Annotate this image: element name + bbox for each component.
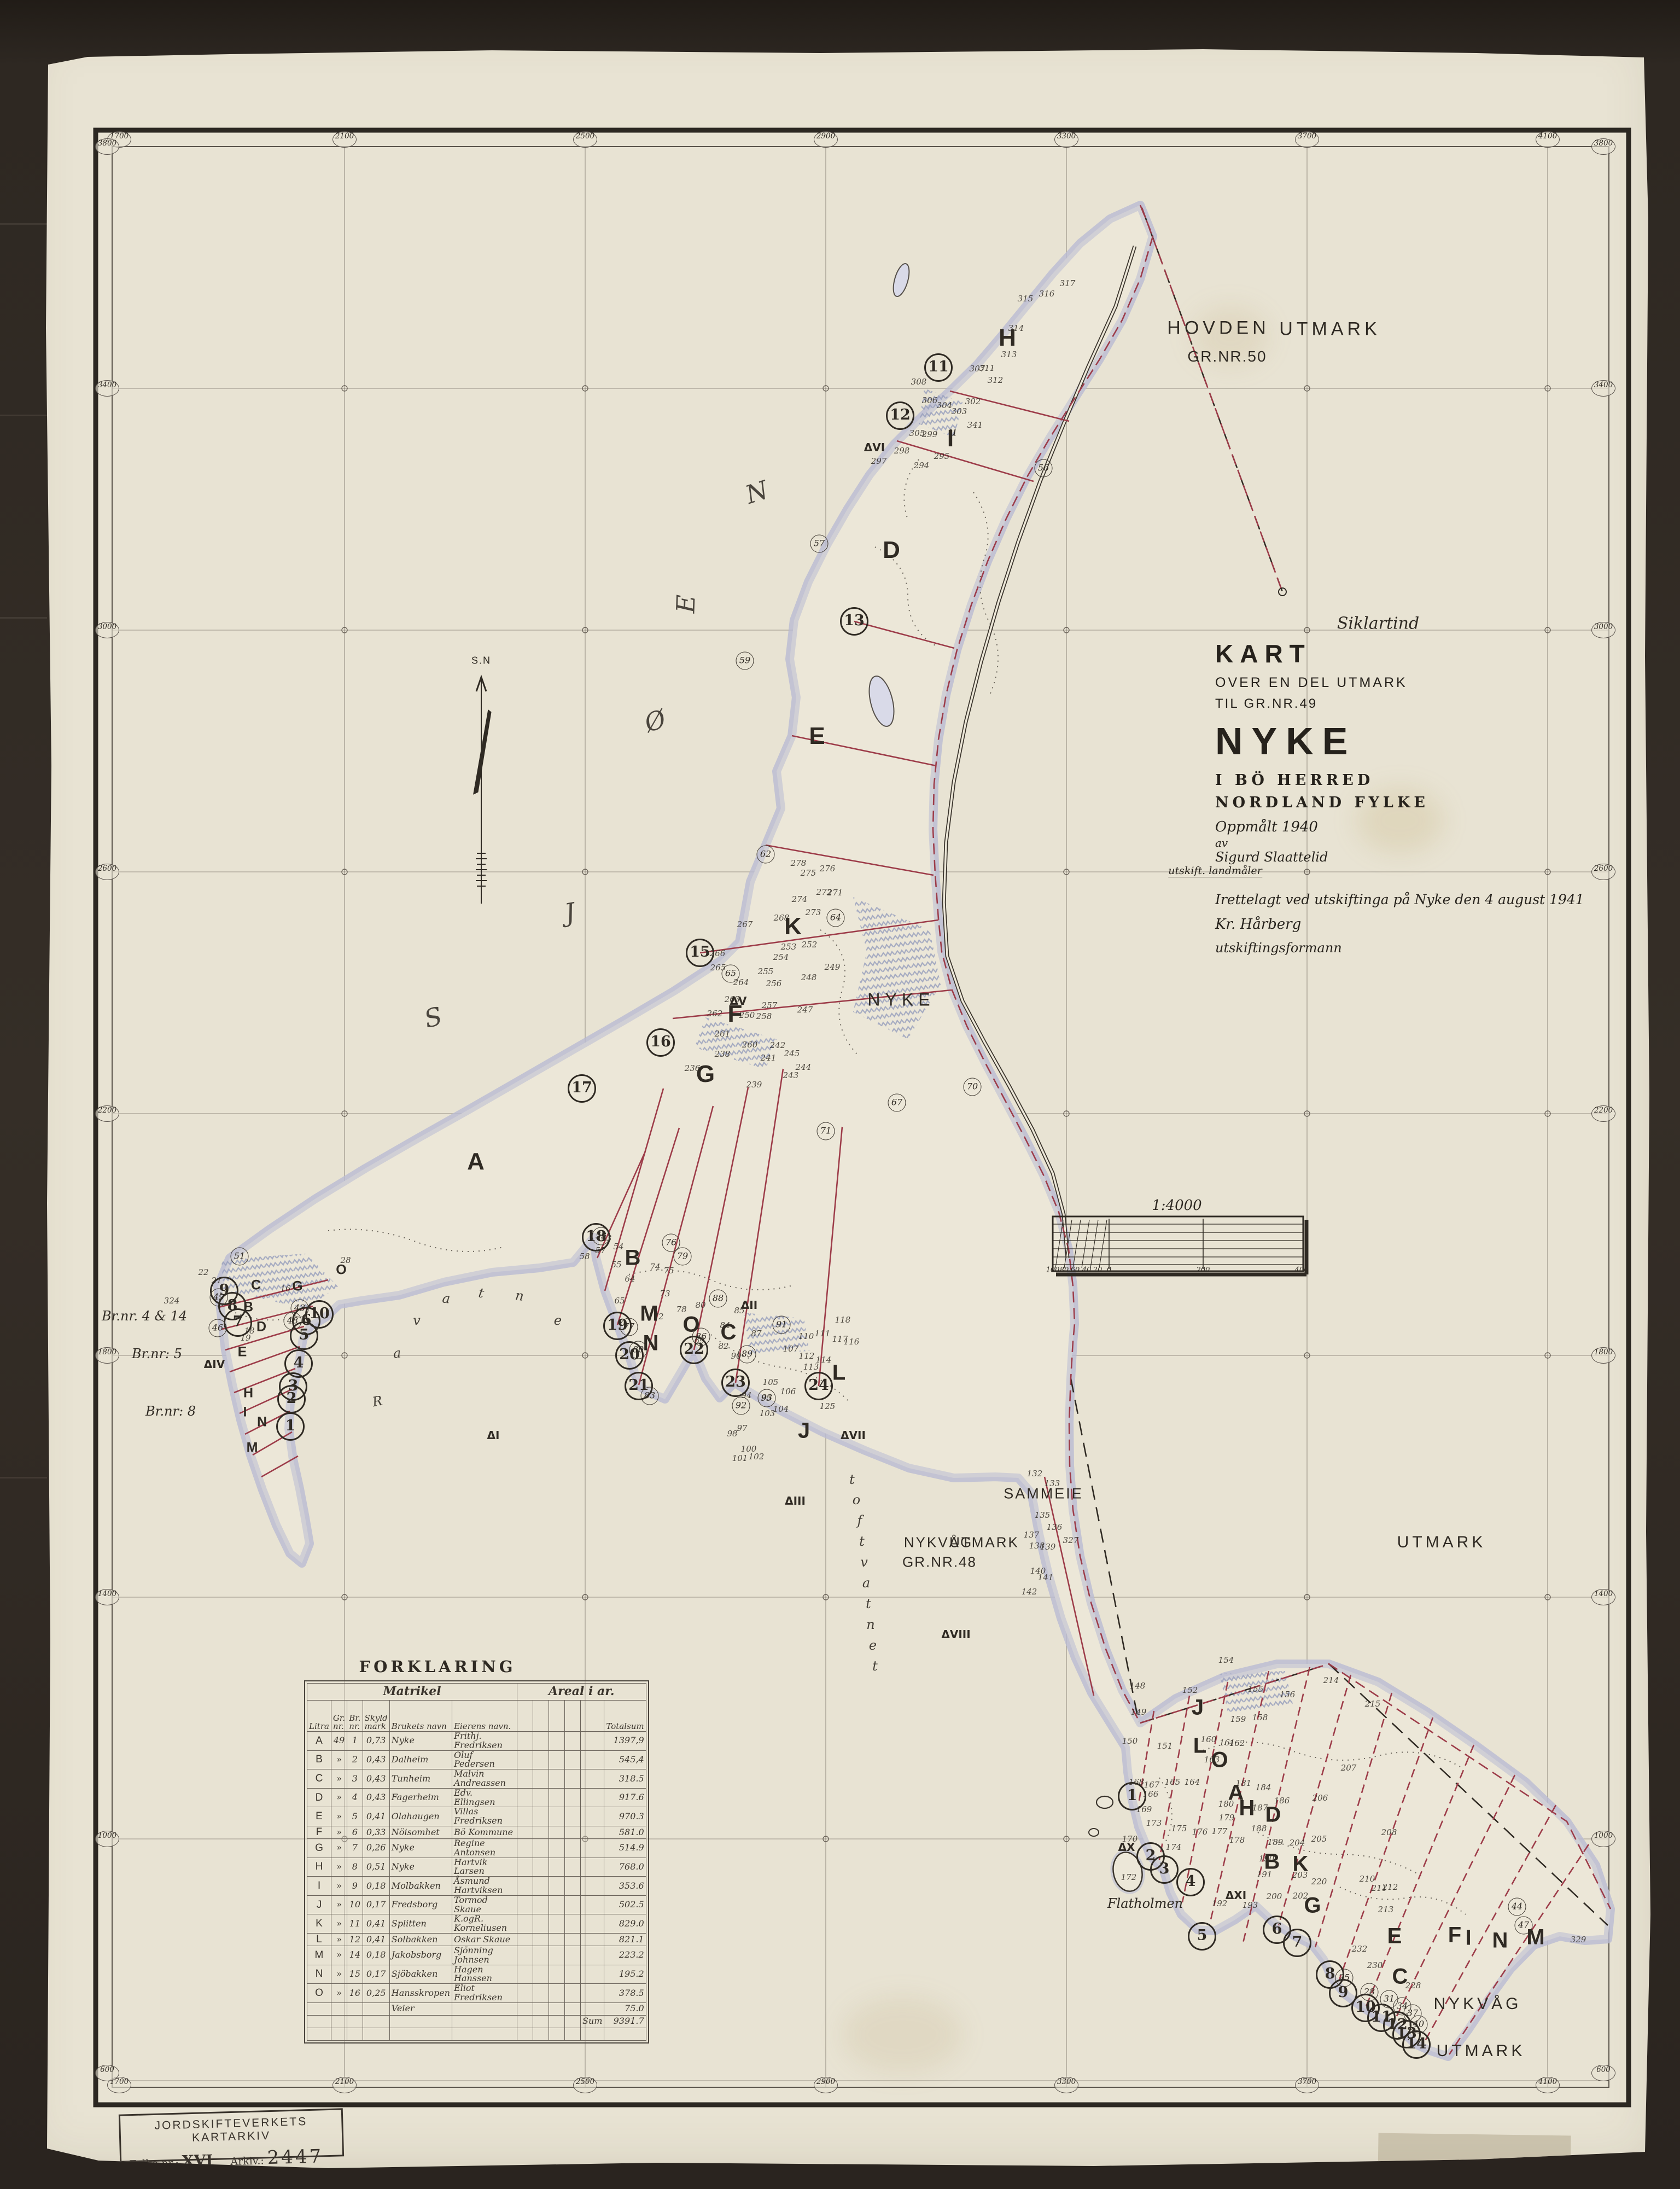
grid-coordinate-label: 3000 (1591, 622, 1615, 638)
archive-stamp-refs: Fylke nr.: XVI Arkiv.: 2447 (121, 2145, 343, 2173)
photo-crease (0, 1477, 47, 1478)
scale-tick-label: 60 (1071, 1266, 1080, 1274)
legend-row-cell (533, 1877, 549, 1896)
channel-name-letter: a (862, 1575, 870, 1591)
legend-row-cell (517, 1807, 533, 1826)
parcel-number: 257 (762, 1000, 778, 1010)
legend-row-cell: 0,51 (363, 1858, 389, 1877)
parcel-number: 245 (784, 1049, 800, 1058)
triangulation-mark: ΔVIII (941, 1628, 970, 1641)
legend-row-cell: 0,18 (363, 1877, 389, 1896)
parcel-number: 265 (710, 963, 726, 973)
legend-row-cell: C (307, 1769, 331, 1789)
grid-coordinate-label: 3400 (1591, 380, 1615, 397)
parcel-number: 172 (1121, 1872, 1137, 1882)
legend-row-cell: Frithj. Fredriksen (452, 1732, 517, 1751)
triangulation-mark: ΔIII (785, 1494, 806, 1507)
region-label: SAMMEIE (1004, 1486, 1083, 1503)
legend-row-cell: 11 (347, 1914, 363, 1934)
legend-row-cell (549, 1895, 564, 1914)
parcel-number: 133 (1045, 1478, 1060, 1488)
parcel-number: 58 (579, 1251, 590, 1261)
parcel-number: 306 (922, 395, 938, 405)
station-number: 64 (827, 909, 845, 927)
legend-sum-cell (363, 2015, 389, 2028)
grid-coordinate-label: 2200 (1591, 1105, 1615, 1122)
scale-tick-label: 0 (1107, 1266, 1111, 1274)
bay-name-letter: a (392, 1345, 401, 1361)
station-number: 80 (629, 1341, 647, 1359)
legend-row-cell: 0,41 (363, 1933, 389, 1946)
legend-row-cell (564, 1946, 580, 1965)
legend-veier-cell (533, 2002, 549, 2015)
scale-tick-label: 40 (1082, 1266, 1092, 1274)
legend-veier-cell: Veier (389, 2002, 452, 2015)
legend-row-cell (533, 1750, 549, 1769)
parcel-number: 169 (1136, 1804, 1152, 1814)
station-number: 59 (736, 652, 754, 670)
coast-point-number: 24 (804, 1372, 833, 1400)
legend-row-cell: Tunheim (389, 1769, 452, 1789)
parcel-number: 276 (820, 864, 836, 874)
legend-row-cell (549, 1877, 564, 1896)
parcel-number: 236 (685, 1063, 701, 1073)
legend-sum-cell (549, 2015, 564, 2028)
legend-row-cell: » (331, 1838, 347, 1858)
legend-row-cell (517, 1984, 533, 2003)
grid-coordinate-label: 3800 (95, 138, 119, 155)
legend-row-cell (533, 1965, 549, 1984)
region-label: GR.NR.50 (1187, 348, 1267, 365)
legend-veier-cell (363, 2002, 389, 2015)
legend-row-cell: 12 (347, 1933, 363, 1946)
legend-row-cell (517, 1750, 533, 1769)
legend-row-cell: 0,17 (363, 1965, 389, 1984)
grid-coordinate-label: 2200 (95, 1105, 119, 1122)
parcel-number: 191 (1257, 1870, 1273, 1879)
legend-row-cell: 9 (347, 1877, 363, 1896)
coast-point-number: 13 (840, 607, 868, 636)
parcel-number: 268 (774, 913, 790, 923)
legend-row-cell: 0,33 (363, 1826, 389, 1838)
station-number: 44 (1508, 1898, 1526, 1916)
legend-row-cell (549, 1933, 564, 1946)
legend-row-cell (580, 1933, 604, 1946)
legend-row-cell: 917.6 (604, 1788, 646, 1807)
coast-point-number: 5 (1188, 1922, 1216, 1951)
legend-row-cell: 49 (331, 1732, 347, 1751)
parcel-number: 317 (1060, 278, 1076, 288)
parcel-number: 160 (1201, 1734, 1217, 1744)
legend-row-cell: » (331, 1933, 347, 1946)
fylke-label: Fylke nr.: (129, 2157, 179, 2171)
parcel-number: 214 (1323, 1675, 1339, 1685)
legend-row-cell (517, 1788, 533, 1807)
legend-row-cell: 3 (347, 1769, 363, 1789)
parcel-number: 298 (894, 446, 910, 456)
parcel-number: 302 (965, 397, 981, 406)
parcel-number: 166 (1143, 1789, 1159, 1799)
parcel-number: 238 (715, 1049, 731, 1059)
parcel-number: 174 (1166, 1842, 1182, 1852)
map-label-layer: HOVDENGR.NR.50UTMARKNYKESAMMEIENYKVÅGUTM… (0, 0, 1680, 2189)
legend-sum-cell (389, 2015, 452, 2028)
parcel-number: 22 (198, 1267, 208, 1277)
legend-row-cell: Eliot Fredriksen (452, 1984, 517, 2003)
grid-coordinate-label: 4100 (1536, 131, 1560, 148)
grid-coordinate-label: 2900 (814, 131, 838, 148)
parcel-number: 94 (741, 1390, 751, 1400)
station-number: 91 (773, 1316, 791, 1334)
scale-tick-label: 80 (1060, 1266, 1069, 1274)
parcel-number: 205 (1311, 1834, 1327, 1844)
legend-empty-cell (533, 2028, 549, 2040)
parcel-number: 135 (1035, 1510, 1051, 1520)
legend-row-cell: Regine Antonsen (452, 1838, 517, 1858)
parcel-number: 112 (799, 1351, 815, 1361)
legend-row-cell: 7 (347, 1838, 363, 1858)
parcel-number: 84 (720, 1320, 730, 1330)
parcel-number: 190 (1259, 1854, 1275, 1864)
bay-name-letter: n (514, 1288, 524, 1304)
parcel-letter: I (1465, 1926, 1471, 1951)
parcel-number: 180 (1218, 1799, 1234, 1809)
parcel-number: 329 (1571, 1935, 1586, 1945)
legend-row-cell (564, 1732, 580, 1751)
grid-coordinate-label: 3700 (1295, 2077, 1319, 2093)
legend-sum-cell (533, 2015, 549, 2028)
legend-row-cell: 0,25 (363, 1984, 389, 2003)
legend-veier-cell (452, 2002, 517, 2015)
region-label: UTMARK (949, 1534, 1019, 1551)
scale-title: 1:4000 (1152, 1197, 1201, 1214)
parcel-number: 294 (914, 461, 930, 470)
legend-row-cell (533, 1838, 549, 1858)
parcel-number: 102 (749, 1452, 765, 1462)
legend-row-cell (564, 1914, 580, 1934)
legend-row-cell: Molbakken (389, 1877, 452, 1896)
parcel-number: 28 (340, 1255, 351, 1265)
legend-row-cell: 5 (347, 1807, 363, 1826)
legend-veier-cell (347, 2002, 363, 2015)
station-number: 83 (641, 1387, 659, 1405)
legend-column-header: Br. nr. (347, 1701, 363, 1732)
parcel-number: 117 (832, 1334, 848, 1344)
parcel-number: 207 (1341, 1763, 1357, 1773)
parcel-letter: J (1192, 1696, 1204, 1720)
legend-row-cell (517, 1858, 533, 1877)
parcel-number: 167 (1144, 1780, 1160, 1790)
station-number: 56 (1035, 459, 1053, 478)
parcel-number: 262 (707, 1009, 723, 1018)
grid-coordinate-label: 1400 (1591, 1589, 1615, 1605)
channel-name-letter: t (872, 1658, 878, 1674)
legend-column-header (580, 1701, 604, 1732)
legend-row-cell: Oskar Skaue (452, 1933, 517, 1946)
place-name-script: Siklartind (1337, 614, 1419, 633)
legend-veier-cell (564, 2002, 580, 2015)
parcel-number: 256 (766, 979, 782, 988)
parcel-number: 90 (731, 1351, 741, 1361)
parcel-letter: E (1387, 1924, 1402, 1949)
legend-row-cell: » (331, 1914, 347, 1934)
station-number: 71 (817, 1122, 835, 1140)
legend-empty-cell (452, 2028, 517, 2040)
parcel-letter: N (1492, 1929, 1508, 1953)
bay-name-letter: v (413, 1313, 421, 1328)
parcel-number: 341 (967, 420, 983, 430)
triangulation-mark: ΔII (741, 1299, 757, 1312)
grid-coordinate-label: 3300 (1054, 2077, 1078, 2093)
parcel-number: 137 (1024, 1530, 1040, 1540)
legend-row-cell (580, 1965, 604, 1984)
legend-row-cell: 970.3 (604, 1807, 646, 1826)
scanned-map-sheet: HOVDENGR.NR.50UTMARKNYKESAMMEIENYKVÅGUTM… (0, 0, 1680, 2189)
parcel-letter: D (256, 1319, 266, 1335)
legend-row-cell: Villas Fredriksen (452, 1807, 517, 1826)
legend-row-cell (533, 1807, 549, 1826)
map-paper: HOVDENGR.NR.50UTMARKNYKESAMMEIENYKVÅGUTM… (0, 0, 1680, 2189)
legend-row-cell: D (307, 1788, 331, 1807)
place-name-script: Br.nr: 5 (132, 1346, 182, 1361)
parcel-number: 258 (756, 1011, 772, 1021)
grid-coordinate-label: 1800 (95, 1347, 119, 1364)
legend-row-cell: Nyke (389, 1858, 452, 1877)
legend-row-cell: 0,41 (363, 1914, 389, 1934)
legend-row-cell: O (307, 1984, 331, 2003)
legend-row-cell: 0,43 (363, 1769, 389, 1789)
legend-row-cell (533, 1788, 549, 1807)
surveyor-title: utskift. landmåler (1168, 865, 1262, 877)
legend-row-cell: » (331, 1769, 347, 1789)
legend-row-cell: Edv. Ellingsen (452, 1788, 517, 1807)
photo-crease (0, 617, 47, 619)
grid-coordinate-label: 2600 (1591, 864, 1615, 880)
parcel-number: 274 (792, 894, 808, 904)
station-number: 47 (1515, 1917, 1533, 1935)
parcel-number: 154 (1218, 1655, 1234, 1665)
legend-row-cell (580, 1750, 604, 1769)
tape-patch (1378, 2133, 1571, 2181)
legend-row-cell: » (331, 1946, 347, 1965)
parcel-number: 304 (937, 400, 953, 410)
parcel-number: 184 (1256, 1783, 1271, 1792)
place-name-script: Flatholmen (1107, 1896, 1183, 1911)
coast-point-number: 1 (276, 1412, 305, 1441)
legend-row-cell (517, 1838, 533, 1858)
parcel-number: 178 (1229, 1835, 1245, 1845)
parcel-number: 163 (1204, 1755, 1220, 1765)
legend-row-cell: Hagen Hanssen (452, 1965, 517, 1984)
legend-row-cell (517, 1914, 533, 1934)
parcel-number: 64 (625, 1274, 635, 1284)
station-number: 28 (1361, 1983, 1379, 2001)
legend-empty-cell (363, 2028, 389, 2040)
parcel-letter: E (238, 1344, 247, 1360)
legend-row-cell (580, 1769, 604, 1789)
coast-point-number: 7 (1283, 1929, 1311, 1957)
scale-tick-label: 400 (1295, 1266, 1309, 1274)
legend-row-cell (564, 1984, 580, 2003)
legend-row-cell: J (307, 1895, 331, 1914)
parcel-number: 230 (1367, 1960, 1383, 1970)
parcel-number: 142 (1022, 1587, 1037, 1597)
region-label: UTMARK (1437, 2042, 1526, 2060)
parcel-number: 314 (1008, 323, 1024, 333)
legend-row-cell: Jakobsborg (389, 1946, 452, 1965)
channel-name-letter: t (859, 1534, 865, 1549)
parcel-number: 101 (732, 1453, 748, 1463)
legend-row-cell: 14 (347, 1946, 363, 1965)
scale-tick-label: 20 (1093, 1266, 1102, 1274)
legend-row-cell (580, 1984, 604, 2003)
legend-row-cell: 223.2 (604, 1946, 646, 1965)
parcel-number: 72 (653, 1312, 663, 1321)
legend-row-cell (549, 1965, 564, 1984)
parcel-number: 273 (806, 907, 821, 917)
legend-group-header: Areal i ar. (517, 1684, 646, 1701)
parcel-number: 107 (783, 1344, 799, 1354)
legend-sum-cell (452, 2015, 517, 2028)
parcel-number: 249 (825, 962, 841, 972)
bay-name-letter: R (371, 1393, 384, 1410)
coast-point-number: 17 (568, 1074, 596, 1103)
triangulation-mark: ΔX (1118, 1841, 1135, 1854)
legend-row-cell: » (331, 1807, 347, 1826)
fylke-value: XVI (182, 2151, 213, 2170)
parcel-number: 125 (820, 1401, 836, 1411)
legend-row-cell (517, 1877, 533, 1896)
legend-row-cell (580, 1858, 604, 1877)
legend-empty-cell (604, 2028, 646, 2040)
parcel-number: 253 (781, 942, 797, 952)
compass-label: S.N (471, 655, 491, 667)
legend-row-cell: 0,18 (363, 1946, 389, 1965)
legend-row-cell: 15 (347, 1965, 363, 1984)
parcel-number: 261 (715, 1029, 731, 1039)
legend-row-cell: Olahaugen (389, 1807, 452, 1826)
legend-column-header (517, 1701, 533, 1732)
channel-name-letter: o (853, 1492, 860, 1507)
parcel-number: 208 (1381, 1827, 1397, 1837)
legend-row-cell (564, 1858, 580, 1877)
parcel-number: 244 (796, 1062, 812, 1072)
grid-coordinate-label: 1400 (95, 1589, 119, 1605)
coast-point-number: 11 (924, 353, 953, 382)
region-label: NYKVÅG (1433, 1995, 1521, 2013)
parcel-number: 264 (733, 977, 749, 987)
legend-row-cell (517, 1933, 533, 1946)
parcel-number: 248 (801, 973, 817, 982)
parcel-number: 232 (1352, 1944, 1368, 1954)
parcel-number: 295 (934, 451, 950, 461)
parcel-number: 297 (871, 456, 887, 466)
legend-row-cell: » (331, 1826, 347, 1838)
parcel-number: 206 (1312, 1793, 1328, 1803)
region-label: UTMARK (1279, 319, 1381, 340)
archive-stamp: JORDSKIFTEVERKETS KARTARKIV Fylke nr.: X… (119, 2108, 344, 2162)
parcel-number: 186 (1274, 1796, 1290, 1806)
channel-name-letter: t (866, 1596, 871, 1611)
parcel-letter: I (243, 1405, 247, 1420)
parcel-number: 54 (613, 1242, 623, 1251)
legend-row-cell: M (307, 1946, 331, 1965)
grid-coordinate-label: 600 (1591, 2065, 1615, 2081)
legend-row-cell: 318.5 (604, 1769, 646, 1789)
parcel-number: 228 (1405, 1981, 1421, 1990)
parcel-number: 159 (1230, 1714, 1246, 1724)
legend-row-cell (580, 1826, 604, 1838)
legend-row-cell: 0,43 (363, 1750, 389, 1769)
sea-name-letter: J (562, 897, 577, 928)
parcel-number: 150 (1122, 1736, 1138, 1746)
scale-tick-label: 200 (1197, 1266, 1210, 1274)
legend-row-cell (564, 1826, 580, 1838)
legend-row-cell (549, 1826, 564, 1838)
grid-coordinate-label: 2900 (814, 2077, 838, 2093)
legend-row-cell: » (331, 1750, 347, 1769)
parcel-number: 255 (758, 967, 774, 976)
parcel-number: 179 (1219, 1813, 1235, 1823)
legend-row-cell (549, 1984, 564, 2003)
parcel-number: 239 (746, 1080, 762, 1090)
parcel-number: 327 (1063, 1535, 1079, 1545)
station-number: 46 (209, 1319, 227, 1337)
legend-row-cell (533, 1826, 549, 1838)
legend-empty-cell (580, 2028, 604, 2040)
parcel-number: 136 (1047, 1522, 1063, 1532)
bay-name-letter: t (477, 1285, 485, 1301)
legend-row-cell (564, 1877, 580, 1896)
channel-name-letter: v (860, 1555, 868, 1570)
legend-sum-cell (517, 2015, 533, 2028)
legend-row-cell: 10 (347, 1895, 363, 1914)
legend-sum-cell (564, 2015, 580, 2028)
parcel-number: 312 (988, 375, 1004, 385)
legend-empty-cell (307, 2028, 331, 2040)
parcel-letter: A (467, 1148, 485, 1175)
parcel-number: 267 (737, 919, 753, 929)
legend-row-cell (580, 1788, 604, 1807)
legend-row-cell: Sjöbakken (389, 1965, 452, 1984)
legend-table-frame: MatrikelAreal i ar.LitraGr. nr.Br. nr.Sk… (304, 1680, 649, 2044)
sea-name-letter: S (421, 1001, 445, 1034)
grid-coordinate-label: 2600 (95, 864, 119, 880)
legend-row-cell: Dalheim (389, 1750, 452, 1769)
legend-row-cell: » (331, 1788, 347, 1807)
legend-row-cell (564, 1838, 580, 1858)
channel-name-letter: n (866, 1617, 874, 1632)
legend-row-cell: G (307, 1838, 331, 1858)
region-label: GR.NR.48 (902, 1554, 977, 1571)
parcel-letter: N (257, 1414, 267, 1430)
legend-row-cell: Åsmund Hartviksen (452, 1877, 517, 1896)
grid-coordinate-label: 2500 (573, 2077, 597, 2093)
legend-column-header (564, 1701, 580, 1732)
station-number: 51 (231, 1248, 249, 1266)
parcel-letter: B (625, 1246, 641, 1271)
legend-row-cell (564, 1933, 580, 1946)
legend-row-cell: Oluf Pedersen (452, 1750, 517, 1769)
parcel-number: 98 (727, 1429, 737, 1439)
legend-row-cell (580, 1732, 604, 1751)
parcel-letter: D (883, 537, 900, 564)
legend-row-cell: Hartvik Larsen (452, 1858, 517, 1877)
legend-empty-cell (389, 2028, 452, 2040)
legend-sum-cell (331, 2015, 347, 2028)
parcel-number: 303 (952, 406, 967, 416)
grid-coordinate-label: 2500 (573, 131, 597, 148)
